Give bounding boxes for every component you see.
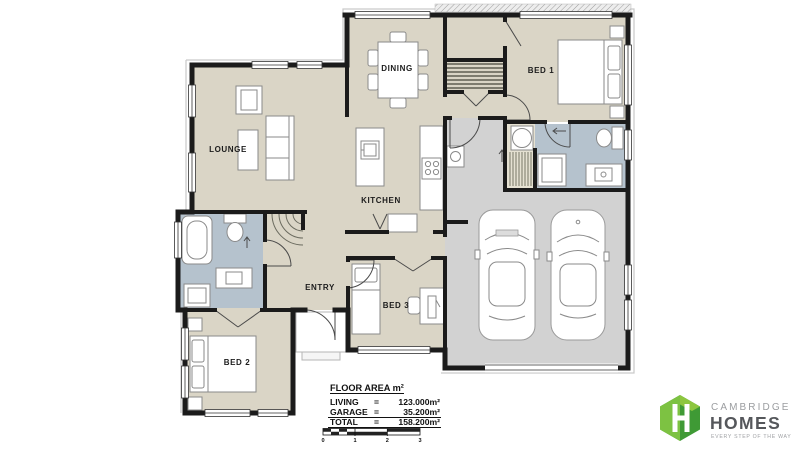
window xyxy=(175,222,182,258)
window xyxy=(625,45,632,105)
room-label-entry: ENTRY xyxy=(305,283,335,292)
floor-area-heading: FLOOR AREA m² xyxy=(330,383,404,393)
logo-brand-top: CAMBRIDGE xyxy=(711,402,790,413)
row-value: 123.000m² xyxy=(398,397,440,407)
room-label-kitchen: KITCHEN xyxy=(361,196,401,205)
room-label-bed1: BED 1 xyxy=(528,66,555,75)
row-eq: = xyxy=(374,397,379,407)
window xyxy=(205,410,250,417)
window xyxy=(358,347,430,354)
row-label: TOTAL xyxy=(330,417,358,427)
row-eq: = xyxy=(374,417,379,427)
bed3-bed xyxy=(352,264,380,334)
room-label-dining: DINING xyxy=(381,64,413,73)
window xyxy=(258,410,288,417)
row-value: 158.200m² xyxy=(398,417,440,427)
floor-area-row-garage: GARAGE = 35.200m² xyxy=(328,407,441,418)
shower-ensuite xyxy=(538,154,566,186)
window xyxy=(355,12,430,19)
row-value: 35.200m² xyxy=(403,407,440,417)
vanity-ensuite xyxy=(586,164,622,186)
room-label-bed3: BED 3 xyxy=(383,301,410,310)
scale-tick-2: 2 xyxy=(386,438,389,444)
row-eq: = xyxy=(374,407,379,417)
room-label-bed2: BED 2 xyxy=(224,358,251,367)
room-label-lounge: LOUNGE xyxy=(209,145,247,154)
shower-main xyxy=(184,284,210,307)
cambridge-homes-logo: CAMBRIDGE HOMES EVERY STEP OF THE WAY xyxy=(660,395,791,441)
window xyxy=(182,366,189,398)
window xyxy=(182,328,189,360)
bathtub xyxy=(182,216,212,264)
scale-tick-3: 3 xyxy=(418,438,421,444)
garage-door xyxy=(485,364,618,373)
window xyxy=(625,265,632,295)
eave-hatch-band xyxy=(435,4,631,12)
window xyxy=(252,62,288,69)
scale-tick-0: 0 xyxy=(321,438,324,444)
scale-tick-1: 1 xyxy=(353,438,356,444)
row-label: LIVING xyxy=(330,397,359,407)
window xyxy=(189,153,196,192)
window xyxy=(189,85,196,117)
laundry-tub xyxy=(447,146,464,167)
floor-area-row-total: TOTAL = 158.200m² xyxy=(328,417,441,428)
window xyxy=(297,62,322,69)
entry-porch xyxy=(296,312,346,360)
car-icon xyxy=(475,210,539,340)
bed1-bed xyxy=(558,26,624,118)
sofa xyxy=(266,116,294,180)
logo-tagline: EVERY STEP OF THE WAY xyxy=(711,434,791,440)
wardrobe-shelving-hatch xyxy=(446,64,503,88)
scale-bar: 0 1 2 3 xyxy=(321,429,421,445)
kitchen-island xyxy=(356,128,384,186)
logo-hexagon-icon xyxy=(660,395,700,441)
floor-area-row-living: LIVING = 123.000m² xyxy=(330,397,440,407)
window xyxy=(625,130,632,160)
row-label: GARAGE xyxy=(330,407,368,417)
floor-plan-canvas: LOUNGE DINING KITCHEN ENTRY BED 1 BED 2 … xyxy=(0,0,800,450)
vanity-main xyxy=(216,268,252,288)
washing-machine xyxy=(511,126,533,150)
logo-brand-bottom: HOMES xyxy=(710,413,781,433)
floor-area-table: FLOOR AREA m² LIVING = 123.000m² GARAGE … xyxy=(321,383,441,444)
armchair xyxy=(236,86,262,114)
window xyxy=(625,300,632,330)
car-icon xyxy=(547,210,609,340)
window xyxy=(520,12,612,19)
